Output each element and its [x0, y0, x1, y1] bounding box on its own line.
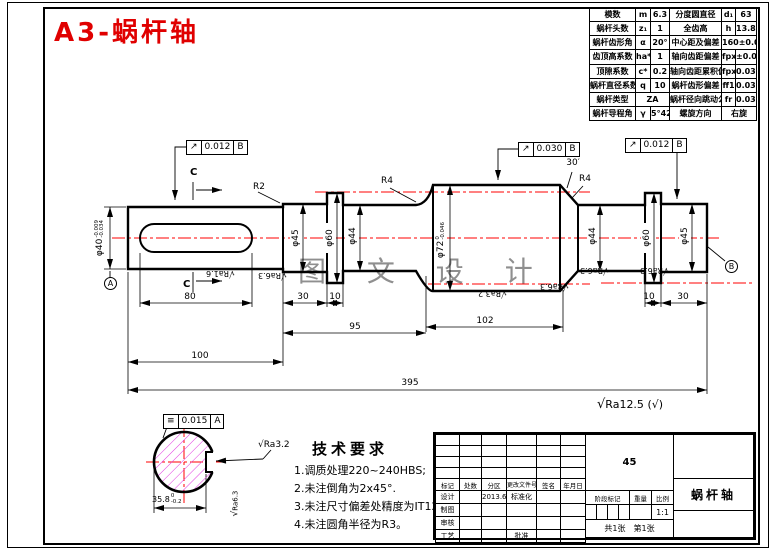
dim-worm-length: 102	[470, 316, 500, 326]
dia-60-right-label: φ60	[641, 223, 653, 253]
roughness-mark-taper: √Ra6.3	[540, 281, 569, 291]
runout-tolerance-frame-middle: ↗ 0.030 B	[518, 142, 580, 157]
process-row: 工艺 批准	[436, 530, 586, 543]
datum-ref: B	[565, 143, 578, 156]
drawing-number-cell	[673, 510, 754, 538]
dia-40-label: φ40 -0.009-0.034	[94, 212, 106, 264]
param-row: 蜗杆导程角γ5°42′螺旋方向右旋	[590, 106, 757, 120]
symmetry-tolerance-frame: ≡ 0.015 A	[163, 414, 224, 429]
param-row: 齿顶高系数ha*1轴向齿距偏差fpx±0.028	[590, 50, 757, 64]
draft-row: 制图	[436, 504, 586, 517]
tolerance-value: 0.015	[178, 415, 211, 428]
section-keyway-dim: 35.8 0-0.2	[152, 494, 182, 505]
param-table: 模数m6.3分度圆直径d₁63 蜗杆头数z₁1全齿高h13.86 蜗杆齿形角α2…	[589, 7, 757, 121]
scale-label-cell: 比例	[651, 490, 674, 505]
scale-value-cell: 1:1	[651, 504, 674, 520]
title-block: 标记 处数 分区 更改文件号 签名 年月日 设计 2013.6 标准化 制图 审…	[433, 432, 756, 540]
datum-ref: A	[210, 415, 223, 428]
param-row: 蜗杆头数z₁1全齿高h13.86	[590, 22, 757, 36]
dia-72-label: φ72 0-0.046	[435, 214, 447, 266]
tech-req-item-1: 1.调质处理220~240HBS;	[294, 462, 426, 478]
dim-30-left: 30	[288, 292, 318, 302]
datum-a-bubble: A	[104, 277, 117, 290]
datum-ref: B	[672, 139, 685, 152]
fillet-r2-label: R2	[250, 182, 268, 192]
section-cut-label-bottom: C	[183, 279, 190, 290]
fillet-r4-left-label: R4	[378, 176, 396, 186]
dia-45-right-label: φ45	[679, 221, 691, 251]
roughness-mark-worm: √Ra3.2	[478, 288, 507, 298]
roughness-mark-section-side: √Ra6.3	[232, 477, 241, 517]
roughness-icon: √	[603, 265, 609, 275]
symmetry-icon: ≡	[164, 415, 178, 428]
roughness-icon: √	[663, 265, 669, 275]
stage-label-cell: 阶段标记	[585, 490, 630, 505]
tolerance-value: 0.030	[533, 143, 566, 156]
tech-req-item-4: 4.未注圆角半径为R3。	[294, 516, 407, 532]
runout-tolerance-frame-right: ↗ 0.012 B	[625, 138, 687, 153]
dim-overall-length: 395	[395, 378, 425, 388]
dim-100: 100	[185, 351, 215, 361]
revision-header-row: 标记 处数 分区 更改文件号 签名 年月日	[436, 479, 586, 491]
tolerance-value: 0.012	[640, 139, 673, 152]
datum-ref: B	[233, 141, 246, 154]
cad-drawing-page: 图 文 设 计	[0, 0, 775, 549]
dia-60-left-label: φ60	[324, 223, 336, 253]
dim-10-right: 10	[638, 292, 660, 302]
tech-req-item-2: 2.未注倒角为2x45°.	[294, 480, 396, 496]
section-cut-label-top: C	[190, 167, 197, 178]
general-roughness-note: √Ra12.5 (√)	[597, 397, 663, 412]
roughness-icon: √	[281, 270, 287, 280]
dim-95: 95	[340, 322, 370, 332]
check-row: 审核	[436, 517, 586, 530]
datum-b-bubble: B	[725, 260, 738, 273]
company-cell	[673, 434, 754, 479]
sheet-title: A3-蜗杆轴	[54, 12, 199, 49]
tech-req-item-3: 3.未注尺寸偏差处精度为IT12;	[294, 498, 442, 514]
roughness-mark-step-left: √Ra6.3	[258, 270, 287, 280]
roughness-mark-right-1: √Ra6.3	[580, 265, 609, 275]
title-block-revision-grid: 标记 处数 分区 更改文件号 签名 年月日 设计 2013.6 标准化 制图 审…	[435, 434, 586, 543]
roughness-mark-keyway: √Ra1.6	[206, 268, 235, 278]
dim-keyway-length: 80	[170, 292, 210, 302]
fillet-r4-right-label: R4	[576, 174, 594, 184]
param-row: 模数m6.3分度圆直径d₁63	[590, 8, 757, 22]
tolerance-value: 0.012	[201, 141, 234, 154]
param-row: 蜗杆类型ZA蜗杆径向跳动公差fr0.035	[590, 92, 757, 106]
param-row: 蜗杆直径系数q10蜗杆齿形偏差ff10.032	[590, 78, 757, 92]
other-surfaces-icon: (√)	[647, 398, 663, 411]
dia-45-left-label: φ45	[290, 223, 302, 253]
runout-icon: ↗	[187, 141, 201, 154]
dia-44-left-label: φ44	[347, 221, 359, 251]
dim-30-right: 30	[668, 292, 698, 302]
param-row: 顶隙系数c*0.2轴向齿距累积偏差fpxl0.034	[590, 64, 757, 78]
taper-angle-label: 30′	[562, 158, 584, 168]
dim-10-left: 10	[324, 292, 346, 302]
stage-mark-boxes	[585, 504, 630, 520]
tech-req-title: 技术要求	[312, 438, 388, 459]
roughness-mark-right-2: √Ra6.3	[640, 265, 669, 275]
sheet-count-cell: 共1张 第1张	[585, 519, 674, 538]
roughness-mark-section: √Ra3.2	[258, 441, 290, 450]
dia-44-right-label: φ44	[587, 221, 599, 251]
runout-icon: ↗	[626, 139, 640, 152]
runout-tolerance-frame-left: ↗ 0.012 B	[186, 140, 248, 155]
weight-label-cell: 重量	[629, 490, 652, 505]
weight-value-cell	[629, 504, 652, 520]
roughness-icon: √	[501, 288, 507, 298]
design-row: 设计 2013.6 标准化	[436, 491, 586, 504]
material-cell: 45	[585, 434, 674, 491]
part-name-cell: 蜗杆轴	[673, 478, 754, 511]
runout-icon: ↗	[519, 143, 533, 156]
roughness-icon: √	[229, 268, 235, 278]
param-row: 蜗杆齿形角α20°中心距及偏差160±0.05	[590, 36, 757, 50]
roughness-icon: √	[563, 281, 569, 291]
roughness-icon: √	[231, 511, 241, 517]
